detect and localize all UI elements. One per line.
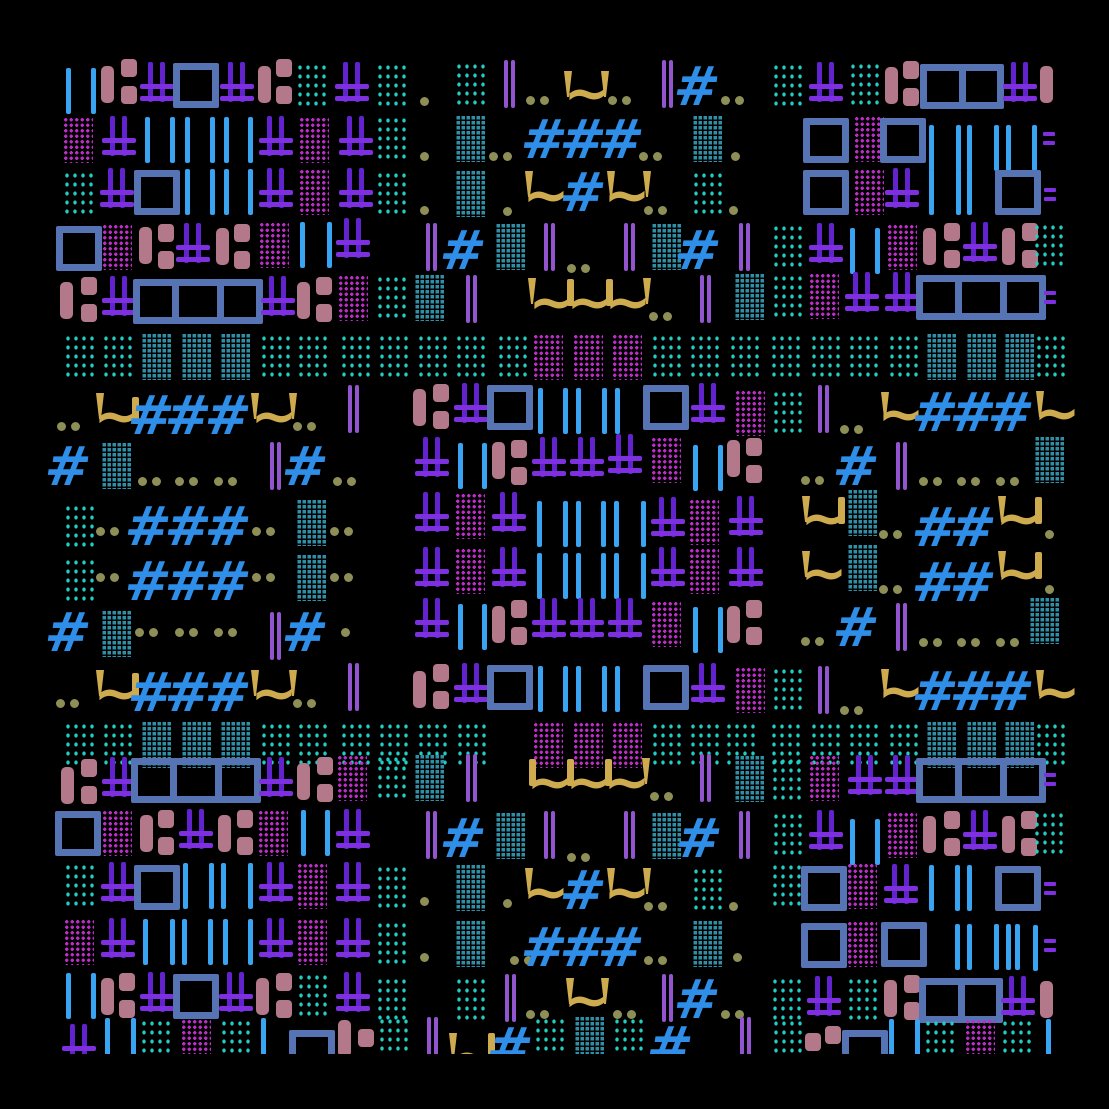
dot-pair-glyph (721, 96, 744, 105)
square-glyph (173, 63, 219, 108)
bar-stroke (415, 514, 449, 519)
magenta-dots-glyph (258, 810, 288, 856)
bar-stroke (466, 754, 470, 802)
teal-dots-glyph (689, 334, 719, 380)
cross-glyph (259, 168, 293, 216)
purple-double-bar-glyph (700, 754, 711, 802)
bar-stroke (622, 96, 631, 105)
blue-bar-glyph (1006, 125, 1011, 171)
cross-glyph (101, 918, 135, 966)
tilde-glyph: ~ (575, 282, 605, 322)
bar-stroke (237, 810, 253, 828)
bar-stroke (189, 477, 198, 486)
blue-bar-glyph (956, 169, 961, 215)
purple-double-bar-glyph (270, 442, 281, 490)
blue-bar-glyph (875, 819, 880, 865)
blue-bar-glyph (248, 169, 253, 215)
bar-stroke (955, 763, 962, 798)
teal-block-glyph (296, 555, 326, 601)
teal-dots-glyph (924, 1019, 954, 1054)
bar-stroke (228, 628, 237, 637)
bar-stroke (854, 706, 863, 715)
bar-stroke (933, 638, 942, 647)
pill-glyph (923, 816, 936, 853)
pill-glyph (492, 442, 505, 479)
bar-stroke (1044, 891, 1056, 895)
blue-bar-glyph (718, 445, 723, 491)
bar-stroke (884, 898, 918, 903)
bar-stroke (101, 884, 135, 889)
dot-pair-glyph (330, 527, 353, 536)
teal-dots-glyph (613, 1017, 643, 1054)
teal-dots-glyph (220, 1019, 250, 1054)
cross-glyph (415, 598, 449, 646)
bar-stroke (624, 223, 628, 271)
bar-stroke (608, 620, 642, 625)
bar-stroke (140, 994, 174, 999)
bar-stroke (234, 251, 250, 269)
square-glyph (55, 811, 101, 856)
hash-glyph: # (207, 554, 249, 608)
blue-bar-glyph (563, 553, 568, 599)
bar-stroke (1044, 948, 1056, 952)
blue-bar-glyph (641, 553, 646, 599)
blue-bar-glyph (576, 666, 581, 712)
cross-glyph (845, 272, 879, 320)
bar-stroke (651, 581, 685, 586)
magenta-dots-glyph (299, 117, 329, 163)
dot-glyph (731, 152, 740, 161)
bar-stroke (879, 530, 888, 539)
bar-stroke (348, 385, 352, 433)
bar-stroke (101, 952, 135, 957)
dot-glyph (729, 206, 738, 215)
cross-glyph (259, 862, 293, 910)
bar-stroke (919, 638, 928, 647)
glyph-art-canvas: ~####~#~##~~~~###~~###~######~##~###~##~… (0, 0, 1109, 1109)
bar-stroke (175, 477, 184, 486)
teal-dots-glyph (455, 334, 485, 380)
blue-bar-glyph (915, 1019, 920, 1054)
blue-bar-glyph (563, 388, 568, 434)
bar-stroke (336, 252, 370, 257)
teal-block-glyph (692, 921, 722, 967)
cross-glyph (101, 862, 135, 910)
blue-bar-glyph (327, 222, 332, 268)
bar-stroke (845, 306, 879, 311)
bar-stroke (252, 573, 261, 582)
purple-double-bar-glyph (348, 663, 359, 711)
blue-bar-glyph (248, 919, 253, 965)
teal-dots-glyph (497, 334, 527, 380)
blue-bar-glyph (563, 501, 568, 547)
blue-bar-glyph (1032, 125, 1037, 171)
square-glyph (487, 665, 533, 710)
bar-stroke (854, 425, 863, 434)
magenta-dots-glyph (297, 863, 327, 909)
teal-dots-glyph (417, 334, 447, 380)
bar-stroke (259, 138, 293, 143)
bar-stroke (336, 831, 370, 836)
teal-dots-glyph (651, 722, 681, 768)
bar-stroke (885, 306, 919, 311)
bar-stroke (261, 298, 295, 303)
bar-stroke (158, 837, 174, 855)
purple-double-bar-glyph (624, 811, 635, 859)
pill-glyph (885, 67, 898, 104)
dot-pair-glyph (214, 477, 237, 486)
blue-bar-glyph (1015, 924, 1020, 970)
bar-stroke (344, 573, 353, 582)
bar-stroke (316, 304, 332, 322)
purple-double-bar-glyph (466, 275, 477, 323)
triple-square-glyph (133, 279, 263, 324)
bar-stroke (102, 310, 136, 315)
dot-glyph (420, 897, 429, 906)
pill-glyph (216, 228, 229, 265)
magenta-dots-glyph (63, 117, 93, 163)
bar-stroke (1044, 882, 1056, 886)
bar-stroke (570, 459, 604, 464)
bar-stroke (433, 223, 437, 271)
bar-stroke (336, 240, 370, 245)
teal-dots-glyph (810, 334, 840, 380)
tilde-glyph: ~ (809, 553, 839, 593)
teal-dots-glyph (772, 1019, 802, 1054)
teal-block-glyph (847, 490, 877, 536)
stacked-squares-glyph (234, 224, 250, 269)
bar-stroke (259, 202, 293, 207)
pill-glyph (101, 978, 114, 1015)
stacked-squares-glyph (433, 664, 449, 709)
bar-stroke (170, 763, 177, 798)
cross-glyph (492, 547, 526, 595)
dot-pair-glyph (879, 530, 902, 539)
bar-stroke (971, 477, 980, 486)
square-glyph (134, 865, 180, 910)
dot-pair-glyph (644, 206, 667, 215)
bar-stroke (963, 844, 997, 849)
teal-dots-glyph (1033, 223, 1063, 269)
magenta-dots-glyph (887, 224, 917, 270)
bar-stroke (551, 223, 555, 271)
hash-glyph: # (600, 112, 642, 166)
teal-block-glyph (414, 275, 444, 321)
blue-bar-glyph (208, 919, 213, 965)
blue-bar-glyph (576, 553, 581, 599)
pill-glyph (60, 282, 73, 319)
magenta-dots-glyph (337, 755, 367, 801)
bar-stroke (885, 294, 919, 299)
bar-stroke (644, 956, 653, 965)
exclamation-glyph (1035, 497, 1042, 524)
bar-stroke (62, 1046, 96, 1051)
dot-pair-glyph (879, 585, 902, 594)
blue-bar-glyph (967, 169, 972, 215)
cross-glyph (219, 972, 253, 1020)
teal-block-glyph (141, 334, 171, 380)
dot-pair-glyph (644, 902, 667, 911)
bar-stroke (735, 96, 744, 105)
bar-stroke (266, 573, 275, 582)
teal-block-glyph (181, 334, 211, 380)
pill-glyph (1040, 66, 1053, 103)
bar-stroke (840, 425, 849, 434)
hash-glyph: # (677, 223, 719, 277)
magenta-dots-glyph (573, 334, 603, 380)
bar-stroke (219, 994, 253, 999)
cross-glyph (532, 598, 566, 646)
bar-stroke (1044, 197, 1056, 201)
blue-bar-glyph (66, 68, 71, 114)
bar-stroke (81, 304, 97, 322)
teal-dots-glyph (376, 275, 406, 321)
bar-stroke (532, 471, 566, 476)
cross-glyph (415, 547, 449, 595)
teal-dots-glyph (64, 558, 94, 604)
bar-stroke (339, 202, 373, 207)
dot-pair-glyph (96, 527, 119, 536)
bar-stroke (335, 96, 369, 101)
tilde-glyph: ~ (531, 872, 561, 912)
triple-square-glyph (916, 275, 1046, 320)
teal-dots-glyph (376, 171, 406, 217)
bar-stroke (149, 628, 158, 637)
small-square-glyph (805, 1033, 821, 1051)
bar-stroke (426, 811, 430, 859)
bar-stroke (333, 477, 342, 486)
hash-glyph: # (207, 388, 249, 442)
bar-stroke (454, 417, 488, 422)
pill-glyph (1040, 981, 1053, 1018)
magenta-dots-glyph (689, 548, 719, 594)
equals-glyph (1044, 939, 1056, 952)
bar-stroke (214, 628, 223, 637)
bar-stroke (532, 620, 566, 625)
bar-stroke (81, 759, 97, 777)
teal-dots-glyph (376, 116, 406, 162)
hash-glyph: # (952, 500, 994, 554)
bar-stroke (1044, 291, 1056, 295)
purple-double-bar-glyph (504, 60, 515, 108)
bar-stroke (121, 86, 137, 104)
bar-stroke (355, 663, 359, 711)
cross-glyph (570, 437, 604, 485)
bar-stroke (336, 940, 370, 945)
bar-stroke (649, 312, 658, 321)
bar-stroke (415, 471, 449, 476)
blue-bar-glyph (576, 501, 581, 547)
bar-stroke (809, 257, 843, 262)
purple-double-bar-glyph (426, 811, 437, 859)
bar-stroke (729, 569, 763, 574)
bar-stroke (335, 84, 369, 89)
bar-stroke (347, 477, 356, 486)
small-square-glyph (825, 1026, 841, 1044)
square-glyph (173, 974, 219, 1019)
cross-glyph (415, 437, 449, 485)
bar-stroke (885, 777, 919, 782)
hash-glyph: # (990, 385, 1032, 439)
bar-stroke (415, 569, 449, 574)
dot-pair-glyph (919, 477, 942, 486)
cross-glyph (100, 168, 134, 216)
teal-block-glyph (734, 756, 764, 802)
cross-glyph (848, 755, 882, 803)
stacked-squares-glyph (276, 59, 292, 104)
purple-double-bar-glyph (896, 603, 907, 651)
bar-stroke (1003, 84, 1037, 89)
dot-pair-glyph (996, 638, 1019, 647)
stacked-squares-glyph (433, 384, 449, 429)
stacked-squares-glyph (511, 440, 527, 485)
bar-stroke (259, 779, 293, 784)
cross-glyph (102, 116, 136, 164)
bar-stroke (344, 527, 353, 536)
blue-bar-glyph (210, 169, 215, 215)
cross-glyph (691, 383, 725, 431)
purple-double-bar-glyph (544, 223, 555, 271)
bar-stroke (746, 465, 762, 483)
teal-block-glyph (220, 334, 250, 380)
dot-pair-glyph (214, 628, 237, 637)
blue-bar-glyph (145, 117, 150, 163)
bar-stroke (809, 96, 843, 101)
magenta-dots-glyph (809, 755, 839, 801)
blue-bar-glyph (538, 666, 543, 712)
blue-bar-glyph (143, 919, 148, 965)
small-square-glyph (358, 1029, 374, 1047)
bar-stroke (658, 956, 667, 965)
pill-glyph (727, 606, 740, 643)
blue-bar-glyph (576, 388, 581, 434)
bar-stroke (101, 896, 135, 901)
magenta-dots-glyph (854, 169, 884, 215)
bar-stroke (933, 477, 942, 486)
bar-stroke (746, 600, 762, 618)
teal-block-glyph (966, 334, 996, 380)
bar-stroke (339, 138, 373, 143)
blue-bar-glyph (929, 865, 934, 911)
pill-glyph (101, 66, 114, 103)
bar-stroke (651, 531, 685, 536)
bar-stroke (259, 791, 293, 796)
bar-stroke (903, 442, 907, 490)
square-glyph (56, 226, 102, 271)
stacked-squares-glyph (746, 600, 762, 645)
exclamation-glyph (1035, 552, 1042, 579)
bar-stroke (1003, 96, 1037, 101)
tilde-glyph: ~ (1004, 498, 1034, 538)
purple-double-bar-glyph (740, 1017, 751, 1054)
cross-glyph (261, 276, 295, 324)
magenta-dots-glyph (689, 499, 719, 545)
square-glyph (643, 665, 689, 710)
bar-stroke (259, 940, 293, 945)
purple-double-bar-glyph (662, 60, 673, 108)
hash-glyph: # (442, 811, 484, 865)
bar-stroke (631, 811, 635, 859)
bar-stroke (919, 477, 928, 486)
stacked-squares-glyph (81, 759, 97, 804)
bar-stroke (220, 84, 254, 89)
magenta-dots-glyph (181, 1019, 211, 1054)
blue-bar-glyph (185, 169, 190, 215)
teal-dots-glyph (378, 1017, 408, 1054)
teal-block-glyph (455, 116, 485, 162)
bar-stroke (96, 527, 105, 536)
teal-block-glyph (101, 443, 131, 489)
blue-bar-glyph (223, 919, 228, 965)
equals-glyph (1044, 291, 1056, 304)
hash-glyph: # (284, 605, 326, 659)
purple-double-bar-glyph (739, 811, 750, 859)
cross-glyph (259, 918, 293, 966)
hash-glyph: # (442, 223, 484, 277)
magenta-dots-glyph (965, 1019, 995, 1054)
dot-pair-glyph (801, 476, 824, 485)
bar-stroke (896, 442, 900, 490)
bar-stroke (234, 224, 250, 242)
teal-dots-glyph (376, 63, 406, 109)
magenta-dots-glyph (735, 667, 765, 713)
bar-stroke (307, 699, 316, 708)
bar-stroke (492, 581, 526, 586)
cross-glyph (454, 663, 488, 711)
bar-stroke (293, 422, 302, 431)
dot-glyph (1045, 585, 1054, 594)
blue-bar-glyph (850, 228, 855, 274)
bar-stroke (721, 96, 730, 105)
bar-stroke (102, 298, 136, 303)
bar-stroke (903, 603, 907, 651)
bar-stroke (809, 245, 843, 250)
magenta-dots-glyph (455, 548, 485, 594)
cross-glyph (336, 862, 370, 910)
magenta-dots-glyph (847, 921, 877, 967)
bar-stroke (259, 150, 293, 155)
bar-stroke (81, 786, 97, 804)
blue-bar-glyph (170, 919, 175, 965)
bar-stroke (259, 190, 293, 195)
bar-stroke (944, 223, 960, 241)
square-glyph (801, 923, 847, 968)
blue-bar-glyph (538, 388, 543, 434)
bar-stroke (270, 612, 274, 660)
blue-bar-glyph (929, 169, 934, 215)
bar-stroke (879, 585, 888, 594)
teal-dots-glyph (848, 334, 878, 380)
bar-stroke (885, 190, 919, 195)
bar-stroke (801, 637, 810, 646)
dot-pair-glyph (957, 477, 980, 486)
bar-stroke (570, 620, 604, 625)
hash-glyph: # (678, 811, 720, 865)
bar-stroke (1044, 773, 1056, 777)
stacked-squares-glyph (511, 600, 527, 645)
dot-pair-glyph (252, 573, 275, 582)
bar-stroke (81, 277, 97, 295)
bar-stroke (330, 573, 339, 582)
teal-dots-glyph (296, 63, 326, 109)
cross-glyph (179, 809, 213, 857)
bar-stroke (503, 152, 512, 161)
bar-stroke (729, 581, 763, 586)
teal-block-glyph (495, 813, 525, 859)
teal-dots-glyph (63, 171, 93, 217)
magenta-dots-glyph (102, 810, 132, 856)
bar-stroke (707, 275, 711, 323)
